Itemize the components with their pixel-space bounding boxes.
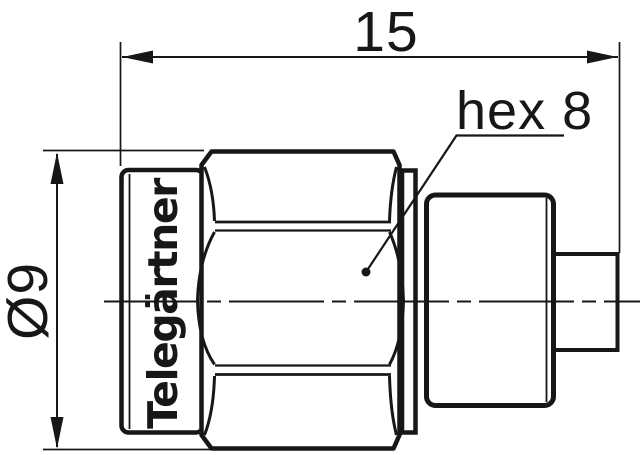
dim-length-arrow-right xyxy=(587,51,618,64)
brand-text: Telegärtner xyxy=(139,177,187,429)
dim-diameter-label: Ø9 xyxy=(0,262,60,340)
dim-length-label: 15 xyxy=(353,0,418,64)
hex-size-label: hex 8 xyxy=(456,81,593,141)
dim-length-arrow-left xyxy=(123,51,154,64)
dim-diameter-arrow-top xyxy=(51,153,64,185)
dim-diameter-arrow-bottom xyxy=(51,417,64,449)
hex-nut-body xyxy=(202,152,400,449)
hex-leader-dot xyxy=(362,268,371,277)
technical-drawing-page: 15 Ø9 hex 8 Telegärtner xyxy=(0,0,640,455)
connector-drawing: 15 Ø9 hex 8 Telegärtner xyxy=(0,0,640,455)
connector-body-cylinder xyxy=(427,195,554,406)
